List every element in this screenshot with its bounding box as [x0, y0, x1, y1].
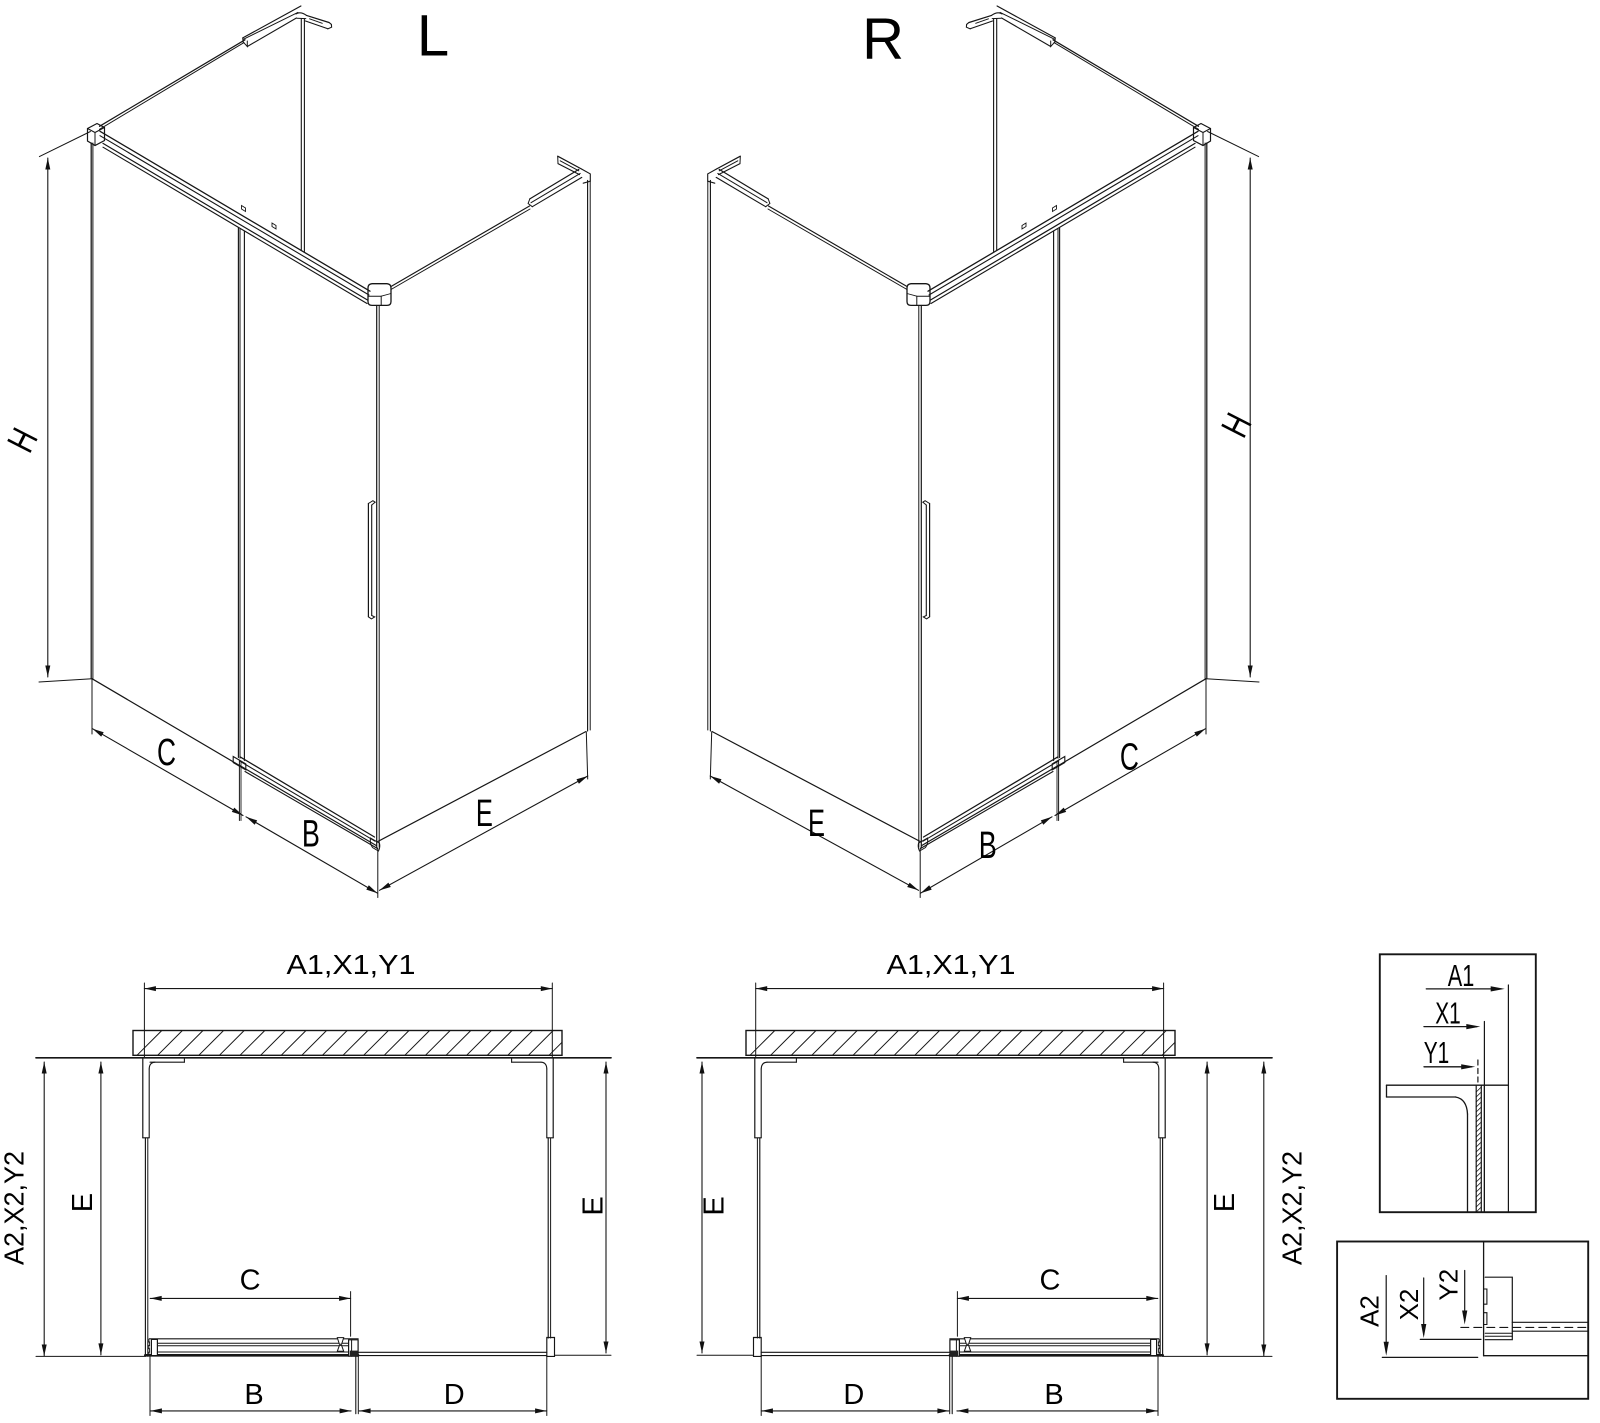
svg-text:A2,X2,Y2: A2,X2,Y2 — [0, 1151, 30, 1265]
svg-text:X1: X1 — [1435, 996, 1461, 1031]
svg-text:E: E — [67, 1193, 99, 1212]
svg-text:Y1: Y1 — [1424, 1035, 1450, 1070]
svg-text:B: B — [244, 1379, 263, 1411]
svg-text:C: C — [1040, 1265, 1061, 1297]
svg-text:L: L — [417, 4, 449, 69]
svg-text:A2: A2 — [1355, 1295, 1385, 1327]
svg-text:B: B — [1044, 1379, 1063, 1411]
svg-text:X2: X2 — [1394, 1289, 1424, 1321]
svg-text:E: E — [1209, 1193, 1241, 1212]
svg-text:A2,X2,Y2: A2,X2,Y2 — [1277, 1151, 1308, 1265]
svg-text:E: E — [578, 1196, 610, 1215]
svg-text:D: D — [444, 1379, 465, 1411]
svg-text:E: E — [476, 793, 493, 835]
svg-text:C: C — [157, 732, 176, 774]
svg-text:C: C — [1120, 737, 1139, 779]
svg-text:E: E — [699, 1196, 731, 1215]
svg-text:A1,X1,Y1: A1,X1,Y1 — [287, 949, 416, 980]
svg-text:A1,X1,Y1: A1,X1,Y1 — [887, 949, 1016, 980]
svg-text:C: C — [240, 1265, 261, 1297]
svg-text:A1: A1 — [1448, 958, 1475, 993]
svg-text:Y2: Y2 — [1434, 1269, 1464, 1301]
svg-text:D: D — [843, 1379, 864, 1411]
svg-text:B: B — [302, 814, 320, 856]
svg-text:R: R — [862, 7, 904, 72]
svg-text:B: B — [979, 825, 997, 867]
svg-text:E: E — [808, 803, 825, 845]
